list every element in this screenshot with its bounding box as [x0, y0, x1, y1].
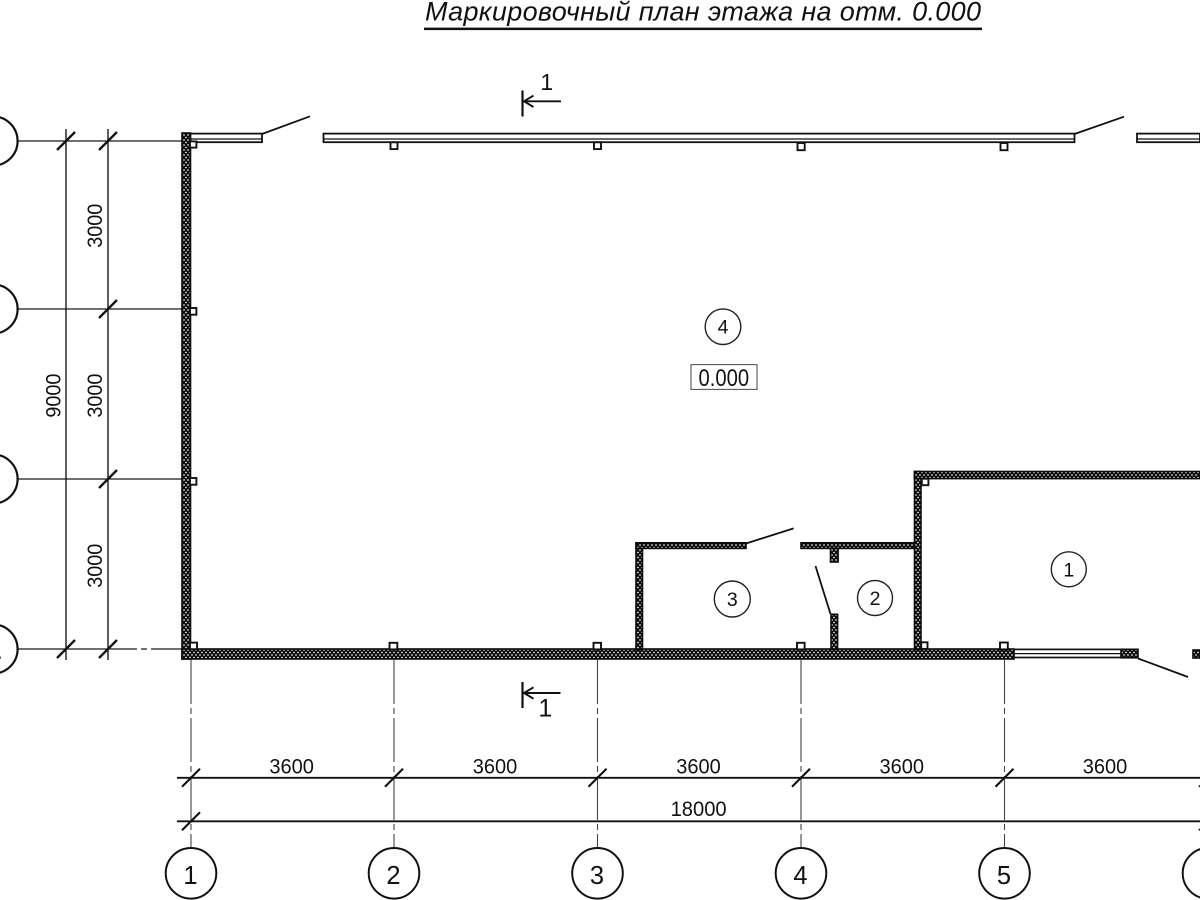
svg-text:3600: 3600 [473, 755, 518, 778]
svg-text:В: В [0, 294, 1, 324]
svg-text:3600: 3600 [1083, 755, 1128, 778]
svg-text:Б: Б [0, 464, 1, 494]
svg-text:3600: 3600 [880, 755, 925, 778]
svg-text:1: 1 [538, 694, 552, 722]
svg-text:1: 1 [540, 69, 553, 95]
svg-text:0.000: 0.000 [699, 365, 750, 392]
svg-text:3000: 3000 [82, 204, 107, 248]
svg-text:2: 2 [386, 862, 400, 890]
svg-text:3600: 3600 [269, 755, 314, 778]
svg-text:9000: 9000 [40, 374, 65, 418]
svg-text:2: 2 [870, 588, 881, 610]
svg-text:4: 4 [718, 317, 729, 339]
svg-text:3000: 3000 [82, 544, 107, 588]
svg-text:3: 3 [590, 862, 604, 890]
svg-text:Маркировочный план этажа на от: Маркировочный план этажа на отм. 0.000 [425, 0, 981, 27]
svg-text:18000: 18000 [671, 798, 727, 821]
svg-text:1: 1 [1063, 559, 1074, 581]
svg-text:3600: 3600 [676, 755, 721, 778]
svg-text:4: 4 [793, 862, 807, 890]
svg-text:5: 5 [997, 862, 1011, 890]
svg-text:3: 3 [727, 589, 738, 611]
svg-text:1: 1 [183, 862, 197, 890]
svg-text:3000: 3000 [82, 374, 107, 418]
